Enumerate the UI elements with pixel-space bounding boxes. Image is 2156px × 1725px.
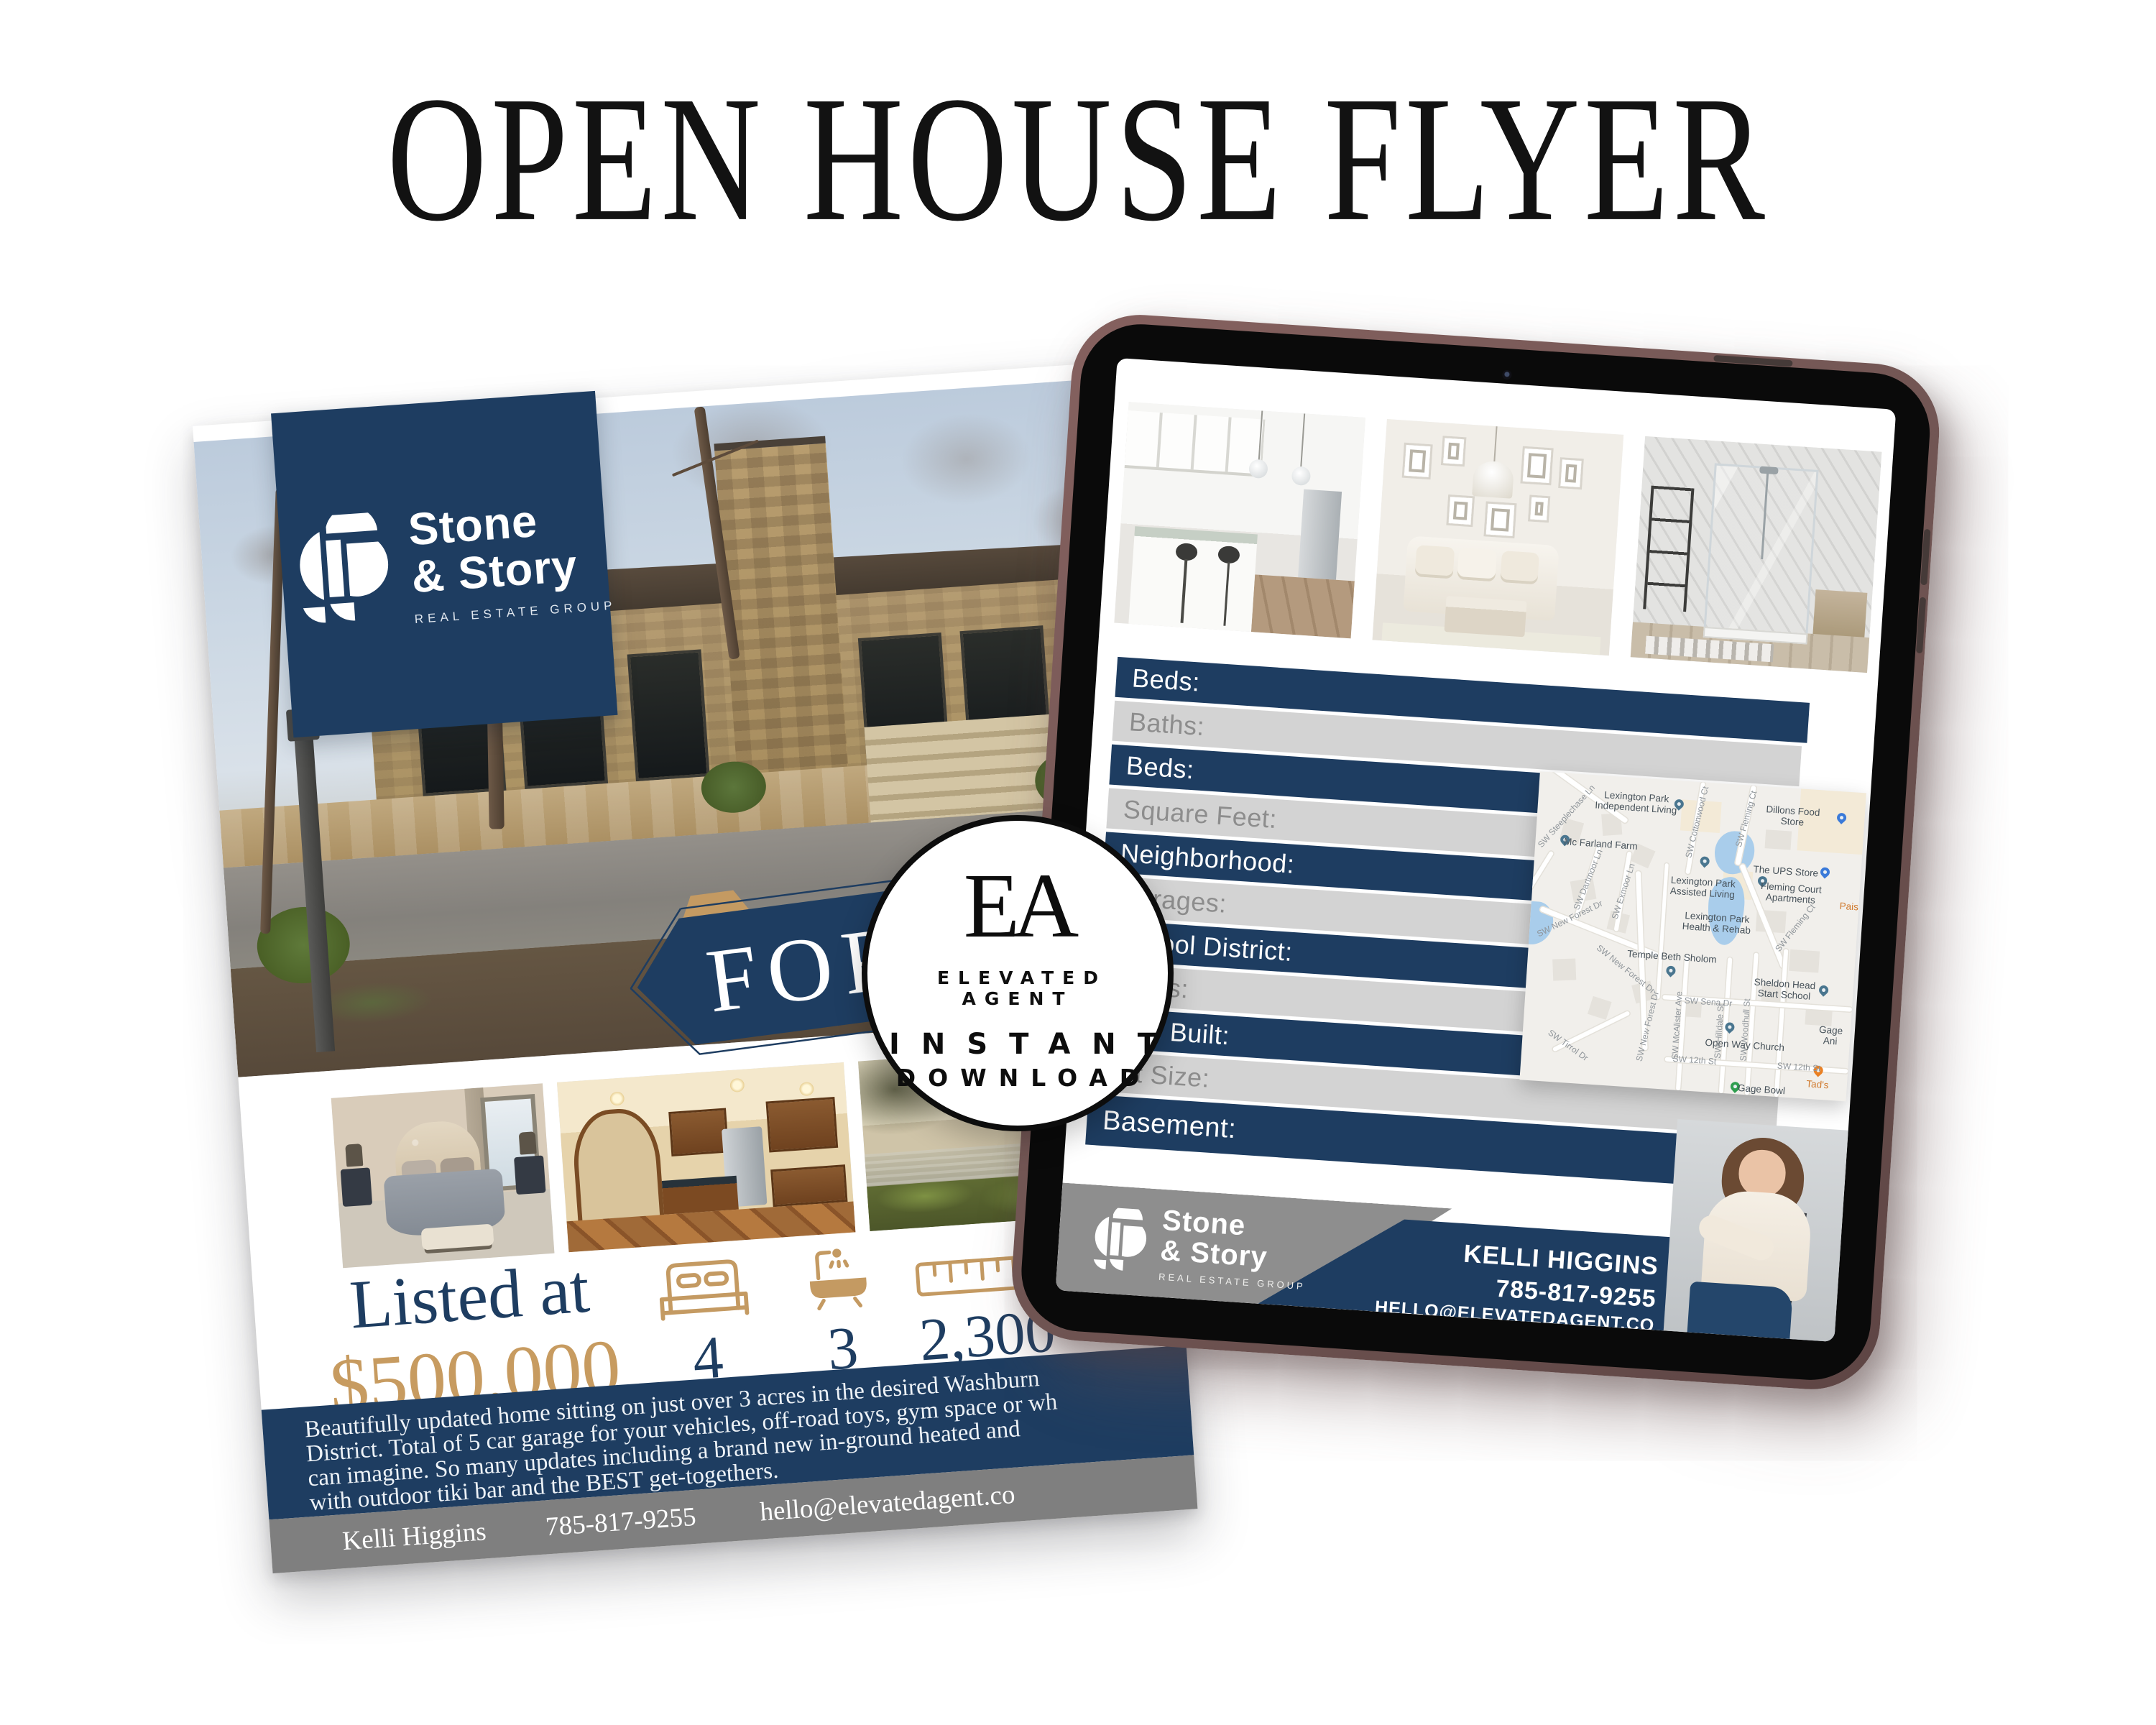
badge-download-line: DOWNLOAD [867, 1064, 1168, 1092]
map-label: Mc Farland Farm [1564, 836, 1639, 852]
neighborhood-map: Lexington Park Independent LivingDillons… [1519, 771, 1866, 1101]
stat-baths: 3 [796, 1242, 885, 1384]
stone-story-mark-icon [272, 512, 394, 633]
bed-icon [647, 1250, 759, 1326]
tablet-mockup: Beds: Baths: Beds: Square Feet: Neighbor… [1008, 310, 1943, 1394]
brand-logo-square: Stone & Story REAL ESTATE GROUP [271, 391, 617, 737]
map-label: Sheldon Head Start School [1753, 976, 1815, 1002]
map-label: SW Exmoor Ln [1610, 862, 1638, 921]
map-pin-icon [1698, 855, 1711, 868]
map-label: Gage Bowl [1737, 1082, 1785, 1096]
instant-download-badge: EA ELEVATED AGENT INSTANT DOWNLOAD [862, 815, 1174, 1131]
kitchen-dining-photo [557, 1062, 856, 1252]
map-label: Fleming Court Apartments [1760, 880, 1823, 906]
bedroom-photo [331, 1083, 555, 1268]
ea-monogram: EA [867, 862, 1168, 949]
brand-tagline: REAL ESTATE GROUP [414, 599, 617, 627]
map-label: Pais [1839, 901, 1858, 913]
stone-story-mark-icon [1078, 1205, 1148, 1276]
tablet-brand-logo: Stone & Story REAL ESTATE GROUP [1078, 1200, 1310, 1292]
living-room-photo [1373, 419, 1624, 655]
map-pin-icon [1818, 983, 1830, 996]
agent-photo [1664, 1119, 1848, 1342]
tablet-screen: Beds: Baths: Beds: Square Feet: Neighbor… [1056, 358, 1897, 1342]
map-label: Lexington Park Assisted Living [1669, 875, 1736, 901]
page-title: OPEN HOUSE FLYER [65, 56, 2091, 263]
contact-phone: 785-817-9255 [533, 1489, 709, 1555]
map-label: SW 12th St [1777, 1061, 1821, 1075]
map-label: Dillons Food Store [1756, 803, 1830, 829]
shower-photo [1631, 436, 1882, 673]
window [627, 649, 709, 781]
front-camera-icon [1502, 370, 1512, 380]
map-pin-icon [1664, 964, 1677, 977]
badge-instant-line: INSTANT [867, 1028, 1168, 1061]
stat-beds: 4 [643, 1250, 768, 1394]
white-kitchen-photo [1114, 402, 1365, 638]
badge-brand-line: ELEVATED AGENT [867, 967, 1168, 1009]
map-label: Tad's [1806, 1078, 1829, 1090]
map-label: Gage Ani [1818, 1023, 1843, 1046]
map-pin-icon [1818, 866, 1831, 879]
contact-name: Kelli Higgins [326, 1504, 502, 1570]
map-label: Lexington Park Health & Rehab [1682, 909, 1751, 935]
bath-icon [800, 1242, 876, 1316]
map-label: Lexington Park Independent Living [1595, 789, 1678, 816]
